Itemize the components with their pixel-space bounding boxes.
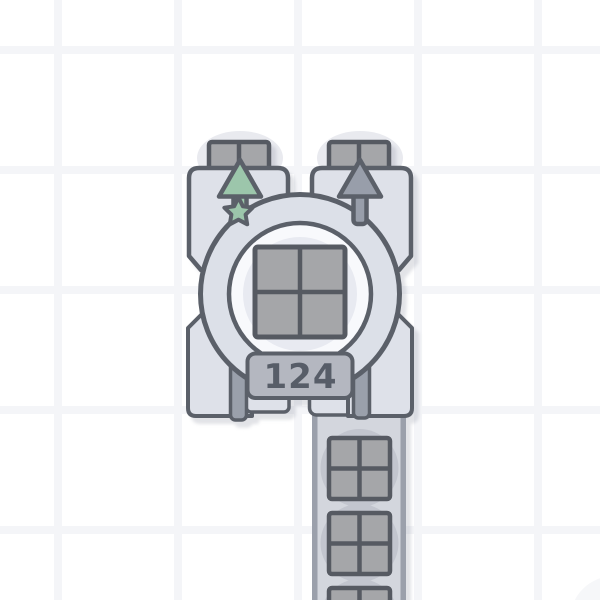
conveyor-belt[interactable] [312, 400, 406, 600]
center-crate-2x2-icon [255, 247, 345, 337]
board-scene: 124 [0, 0, 600, 600]
game-board: 124 [0, 0, 600, 600]
belt-crate-2x2-icon [329, 438, 390, 499]
belt-left-rail [312, 400, 318, 600]
machine-and-belt: 124 [188, 142, 412, 600]
belt-right-rail [401, 400, 407, 600]
machine[interactable]: 124 [188, 142, 412, 420]
counter-badge[interactable]: 124 [248, 354, 353, 399]
counter-value: 124 [264, 357, 338, 397]
belt-crate-2x2-icon [329, 513, 390, 574]
offscreen-object-hint [570, 576, 600, 600]
belt-crate-2x2-icon [329, 588, 390, 600]
